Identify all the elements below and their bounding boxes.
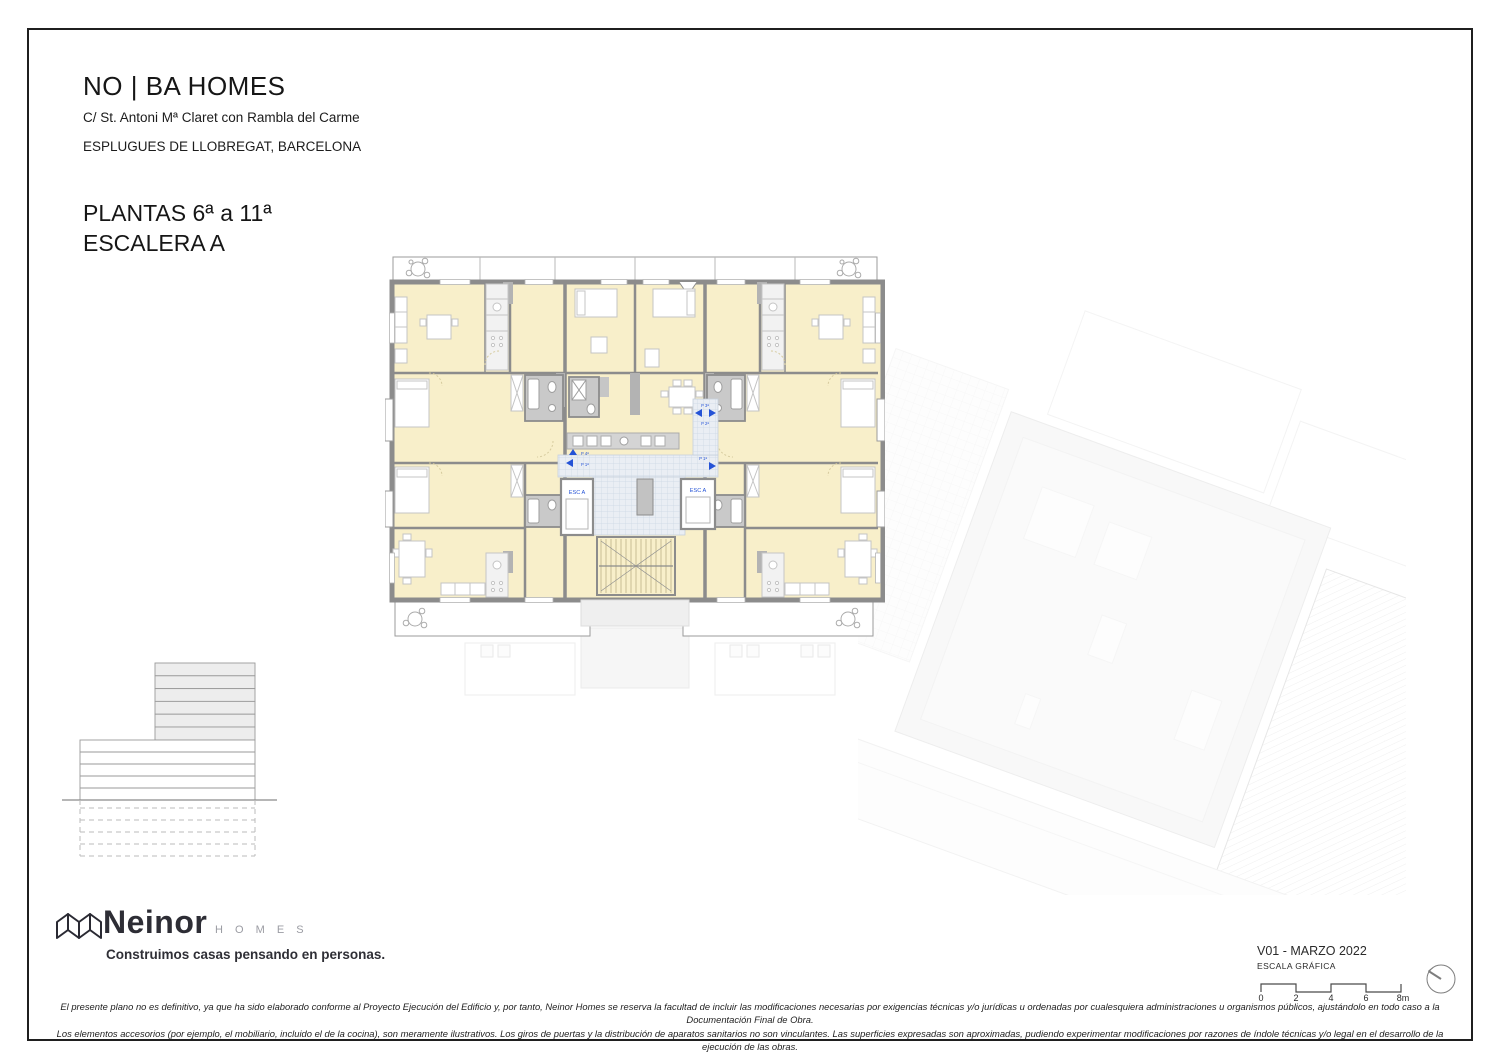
staircase: [597, 537, 675, 595]
staircase-title: ESCALERA A: [83, 230, 225, 257]
floor-plan: ESC A ESC A: [385, 253, 885, 723]
graphic-scale-label: ESCALA GRÁFICA: [1257, 961, 1336, 971]
lower-level-faint: [465, 628, 835, 695]
brand-name: Neinor: [103, 904, 207, 941]
kitchen-counter: [567, 433, 679, 449]
brand-tagline: Construimos casas pensando en personas.: [106, 947, 385, 962]
floor-range-title: PLANTAS 6ª a 11ª: [83, 200, 272, 227]
project-city: ESPLUGUES DE LLOBREGAT, BARCELONA: [83, 139, 361, 154]
podium-floors: [80, 740, 255, 800]
elevator-right: ESC A: [681, 479, 715, 529]
legal-disclaimer-line2: Los elementos accesorios (por ejemplo, e…: [40, 1027, 1460, 1054]
neinor-logo-icon: [56, 910, 102, 946]
tower-floors-highlighted: [155, 663, 255, 740]
elevator-left: ESC A: [561, 479, 593, 535]
legal-disclaimer-line1: El presente plano no es definitivo, ya q…: [40, 1000, 1460, 1027]
basement-levels: [80, 800, 255, 856]
building-section-key: [62, 660, 277, 865]
bathroom: [569, 377, 599, 417]
door-tag: P 4ª: [581, 451, 589, 456]
project-address: C/ St. Antoni Mª Claret con Rambla del C…: [83, 110, 360, 125]
door-tag: P 3ª: [701, 403, 709, 408]
version-label: V01 - MARZO 2022: [1257, 944, 1367, 958]
project-title: NO | BA HOMES: [83, 71, 286, 102]
core-label-right: ESC A: [690, 488, 707, 494]
plan-sheet: NO | BA HOMES C/ St. Antoni Mª Claret co…: [0, 0, 1500, 1061]
door-tag: P 1ª: [699, 456, 707, 461]
door-tag: P 2ª: [701, 421, 709, 426]
scale-bar: [1256, 976, 1416, 994]
north-arrow-icon: [1423, 961, 1459, 997]
core-label-left: ESC A: [569, 490, 586, 496]
brand-word: H O M E S: [215, 924, 308, 936]
vent-shaft: [637, 479, 653, 515]
door-tag: P 1ª: [581, 462, 589, 467]
site-context-drawing: [858, 295, 1406, 895]
legal-disclaimer: El presente plano no es definitivo, ya q…: [40, 1000, 1460, 1054]
neighbor-buildings: [858, 295, 1406, 895]
